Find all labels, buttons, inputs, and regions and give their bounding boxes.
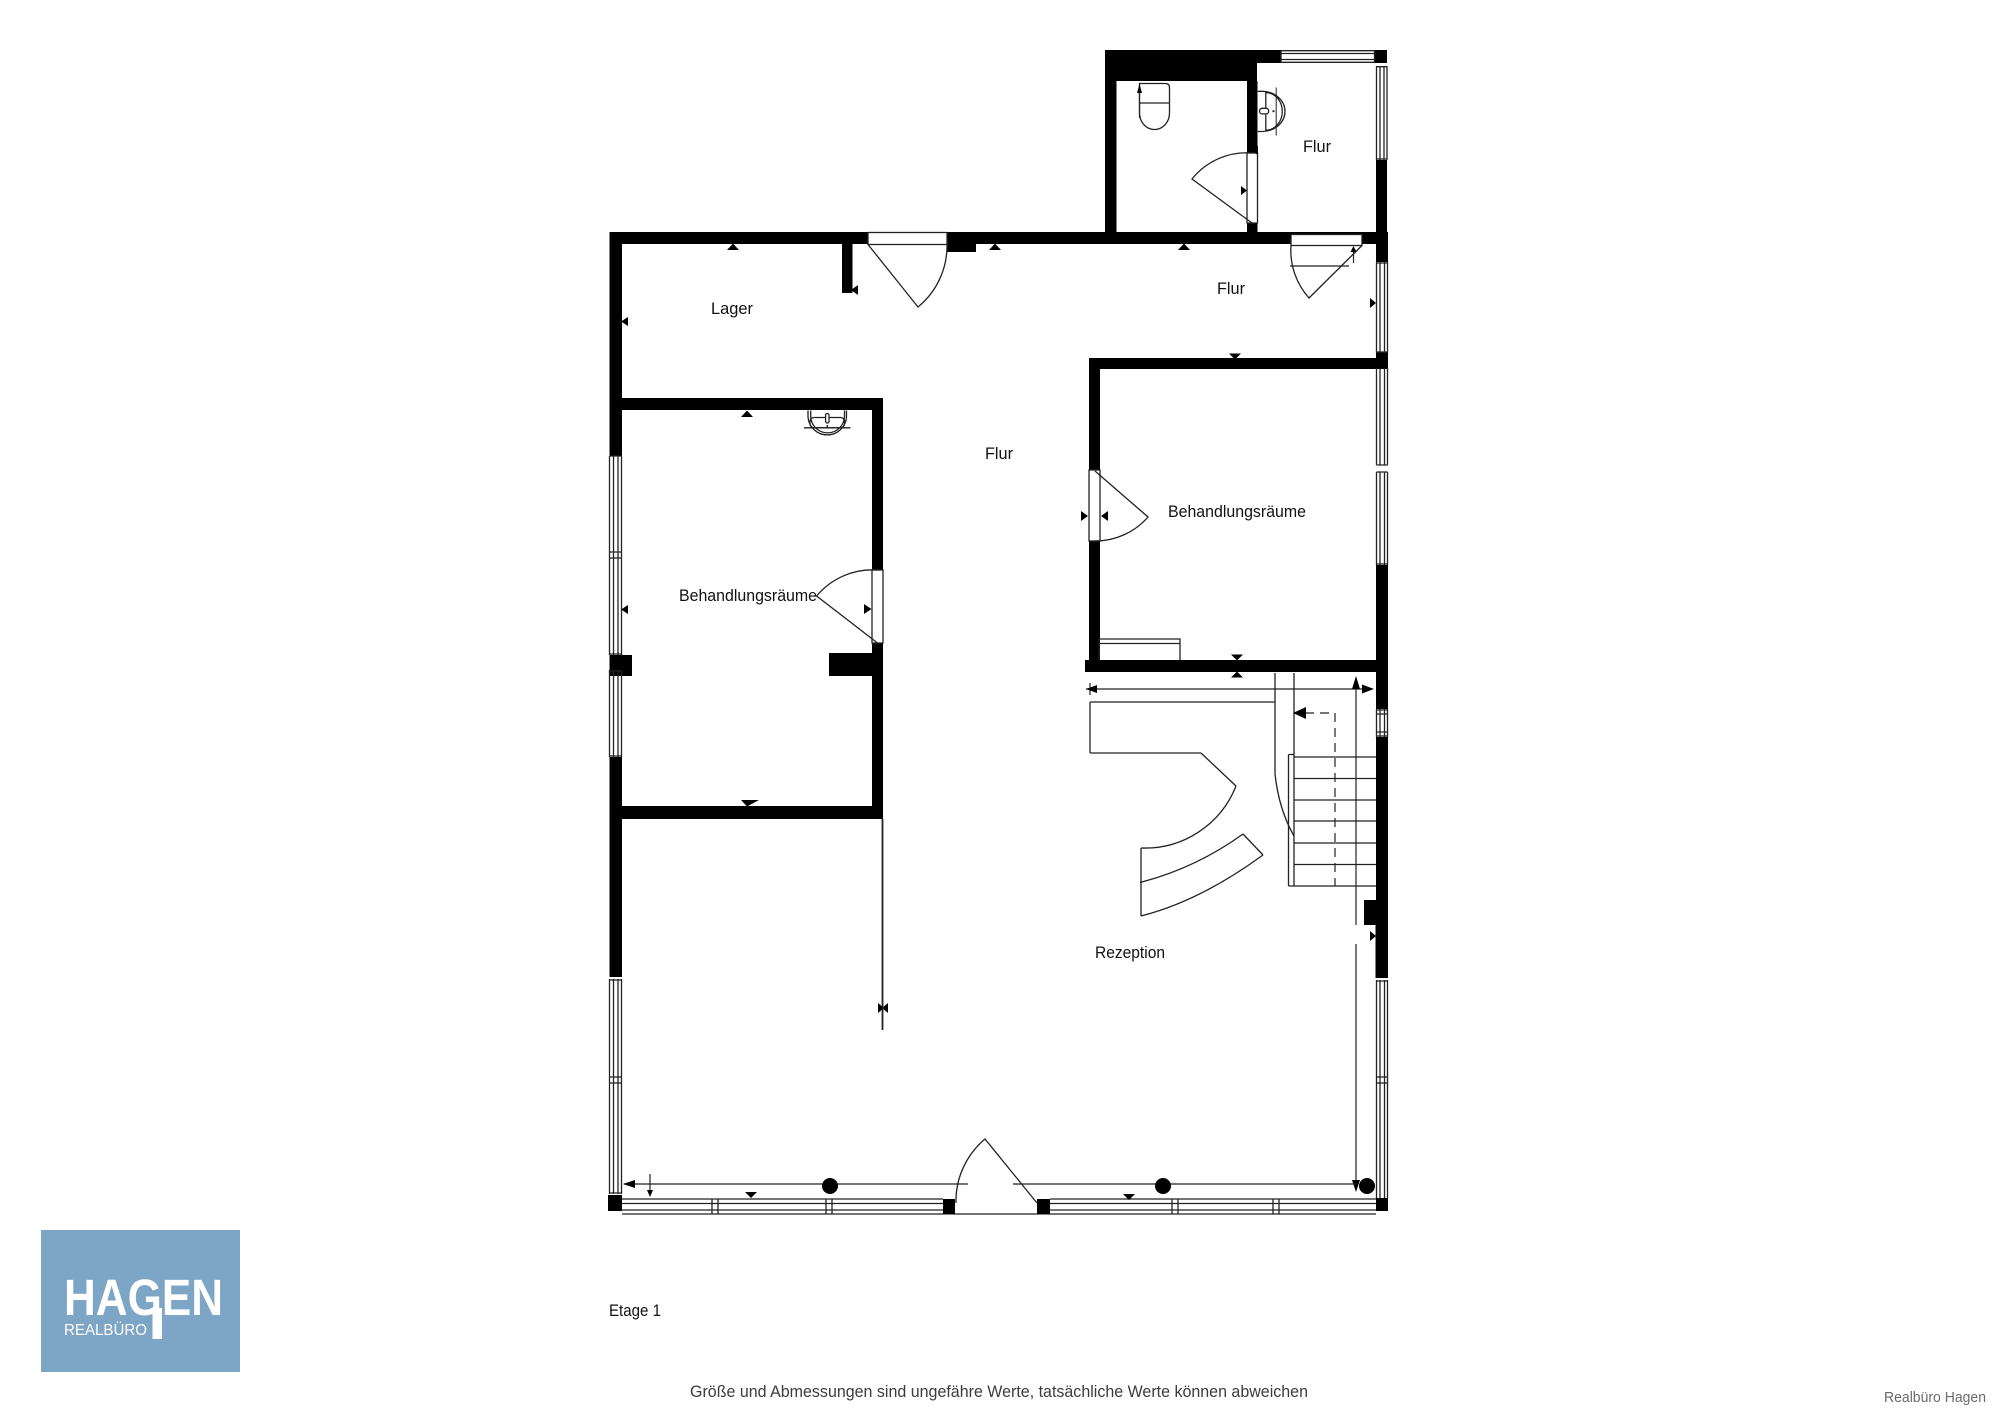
svg-text:REALBÜRO: REALBÜRO [64, 1321, 147, 1339]
svg-text:Flur: Flur [1303, 137, 1331, 156]
svg-text:Etage 1: Etage 1 [609, 1302, 661, 1320]
svg-text:Behandlungsräume: Behandlungsräume [1168, 502, 1306, 521]
svg-text:Flur: Flur [985, 444, 1013, 463]
svg-text:HAGEN: HAGEN [64, 1269, 223, 1326]
svg-text:Behandlungsräume: Behandlungsräume [679, 586, 817, 605]
svg-text:Realbüro Hagen: Realbüro Hagen [1884, 1389, 1986, 1406]
svg-text:Rezeption: Rezeption [1095, 943, 1165, 962]
svg-text:Flur: Flur [1217, 279, 1245, 298]
svg-text:Größe und Abmessungen sind ung: Größe und Abmessungen sind ungefähre Wer… [690, 1382, 1308, 1401]
svg-text:Lager: Lager [711, 299, 753, 318]
